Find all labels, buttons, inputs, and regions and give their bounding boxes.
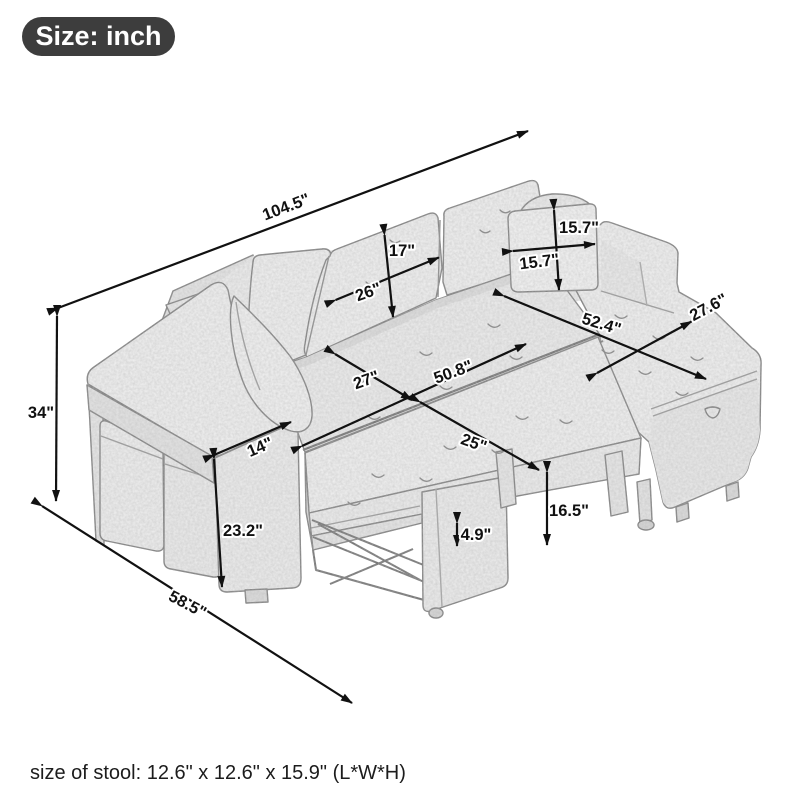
svg-text:104.5": 104.5": [260, 190, 312, 224]
svg-text:23.2": 23.2": [223, 522, 263, 540]
svg-text:15.7": 15.7": [559, 219, 599, 237]
svg-text:58.5": 58.5": [165, 587, 209, 622]
svg-text:16.5": 16.5": [549, 502, 589, 520]
svg-text:4.9": 4.9": [461, 526, 492, 544]
svg-text:34": 34": [28, 404, 54, 422]
svg-text:17": 17": [389, 242, 415, 260]
